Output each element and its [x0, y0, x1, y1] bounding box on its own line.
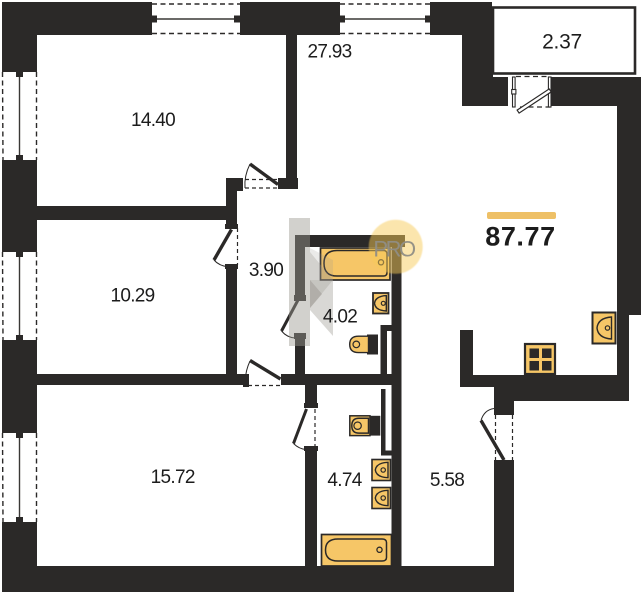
svg-text:4.02: 4.02 — [323, 307, 357, 328]
svg-text:4.74: 4.74 — [327, 470, 362, 491]
svg-text:5.58: 5.58 — [430, 470, 464, 491]
svg-text:87.77: 87.77 — [485, 222, 556, 252]
svg-text:2.37: 2.37 — [542, 31, 582, 54]
svg-text:15.72: 15.72 — [151, 467, 195, 488]
svg-text:10.29: 10.29 — [110, 286, 154, 307]
svg-text:PRO: PRO — [373, 237, 416, 262]
svg-text:14.40: 14.40 — [131, 110, 175, 131]
svg-text:27.93: 27.93 — [307, 42, 351, 63]
svg-text:3.90: 3.90 — [249, 260, 283, 281]
